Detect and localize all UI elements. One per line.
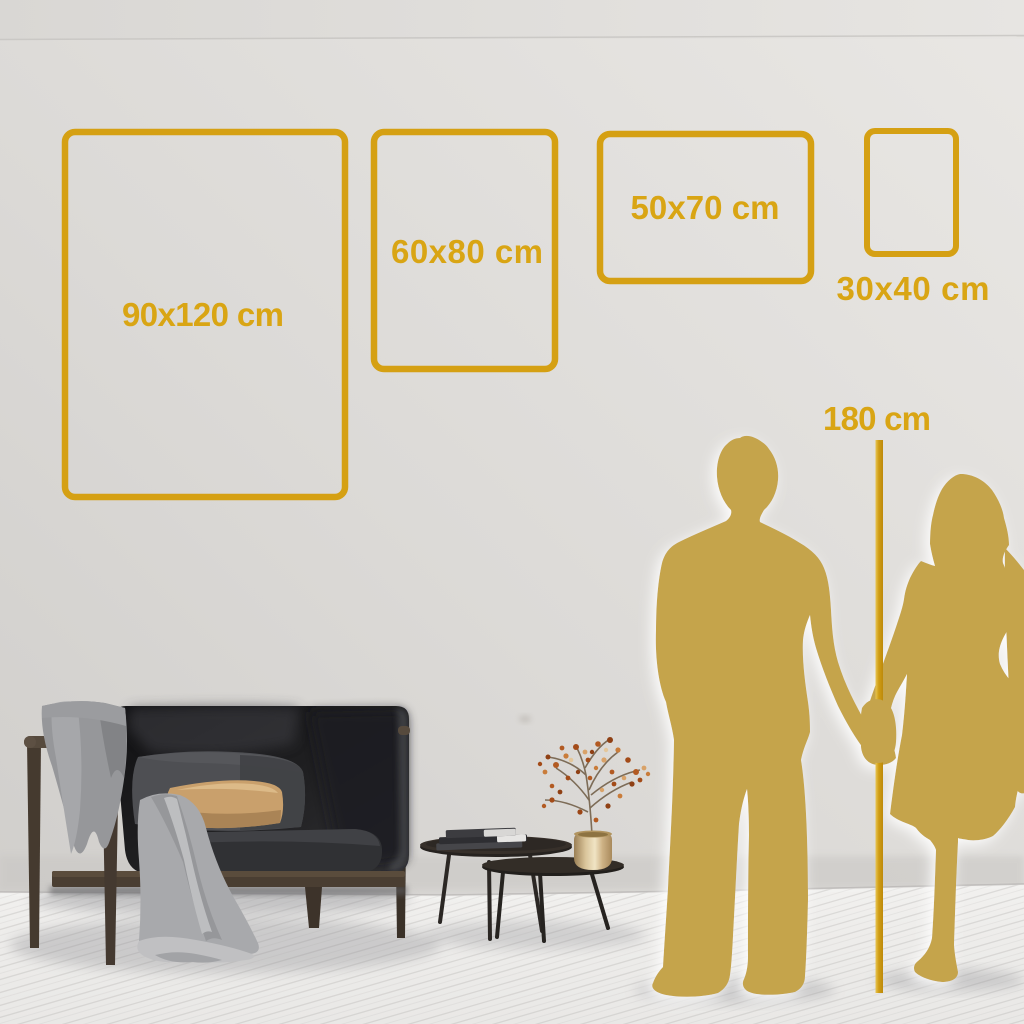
svg-text:180 cm: 180 cm — [823, 400, 931, 437]
svg-text:90x120 cm: 90x120 cm — [122, 296, 284, 333]
svg-text:30x40 cm: 30x40 cm — [837, 270, 990, 307]
svg-text:60x80 cm: 60x80 cm — [391, 233, 543, 270]
svg-text:50x70 cm: 50x70 cm — [631, 189, 780, 226]
